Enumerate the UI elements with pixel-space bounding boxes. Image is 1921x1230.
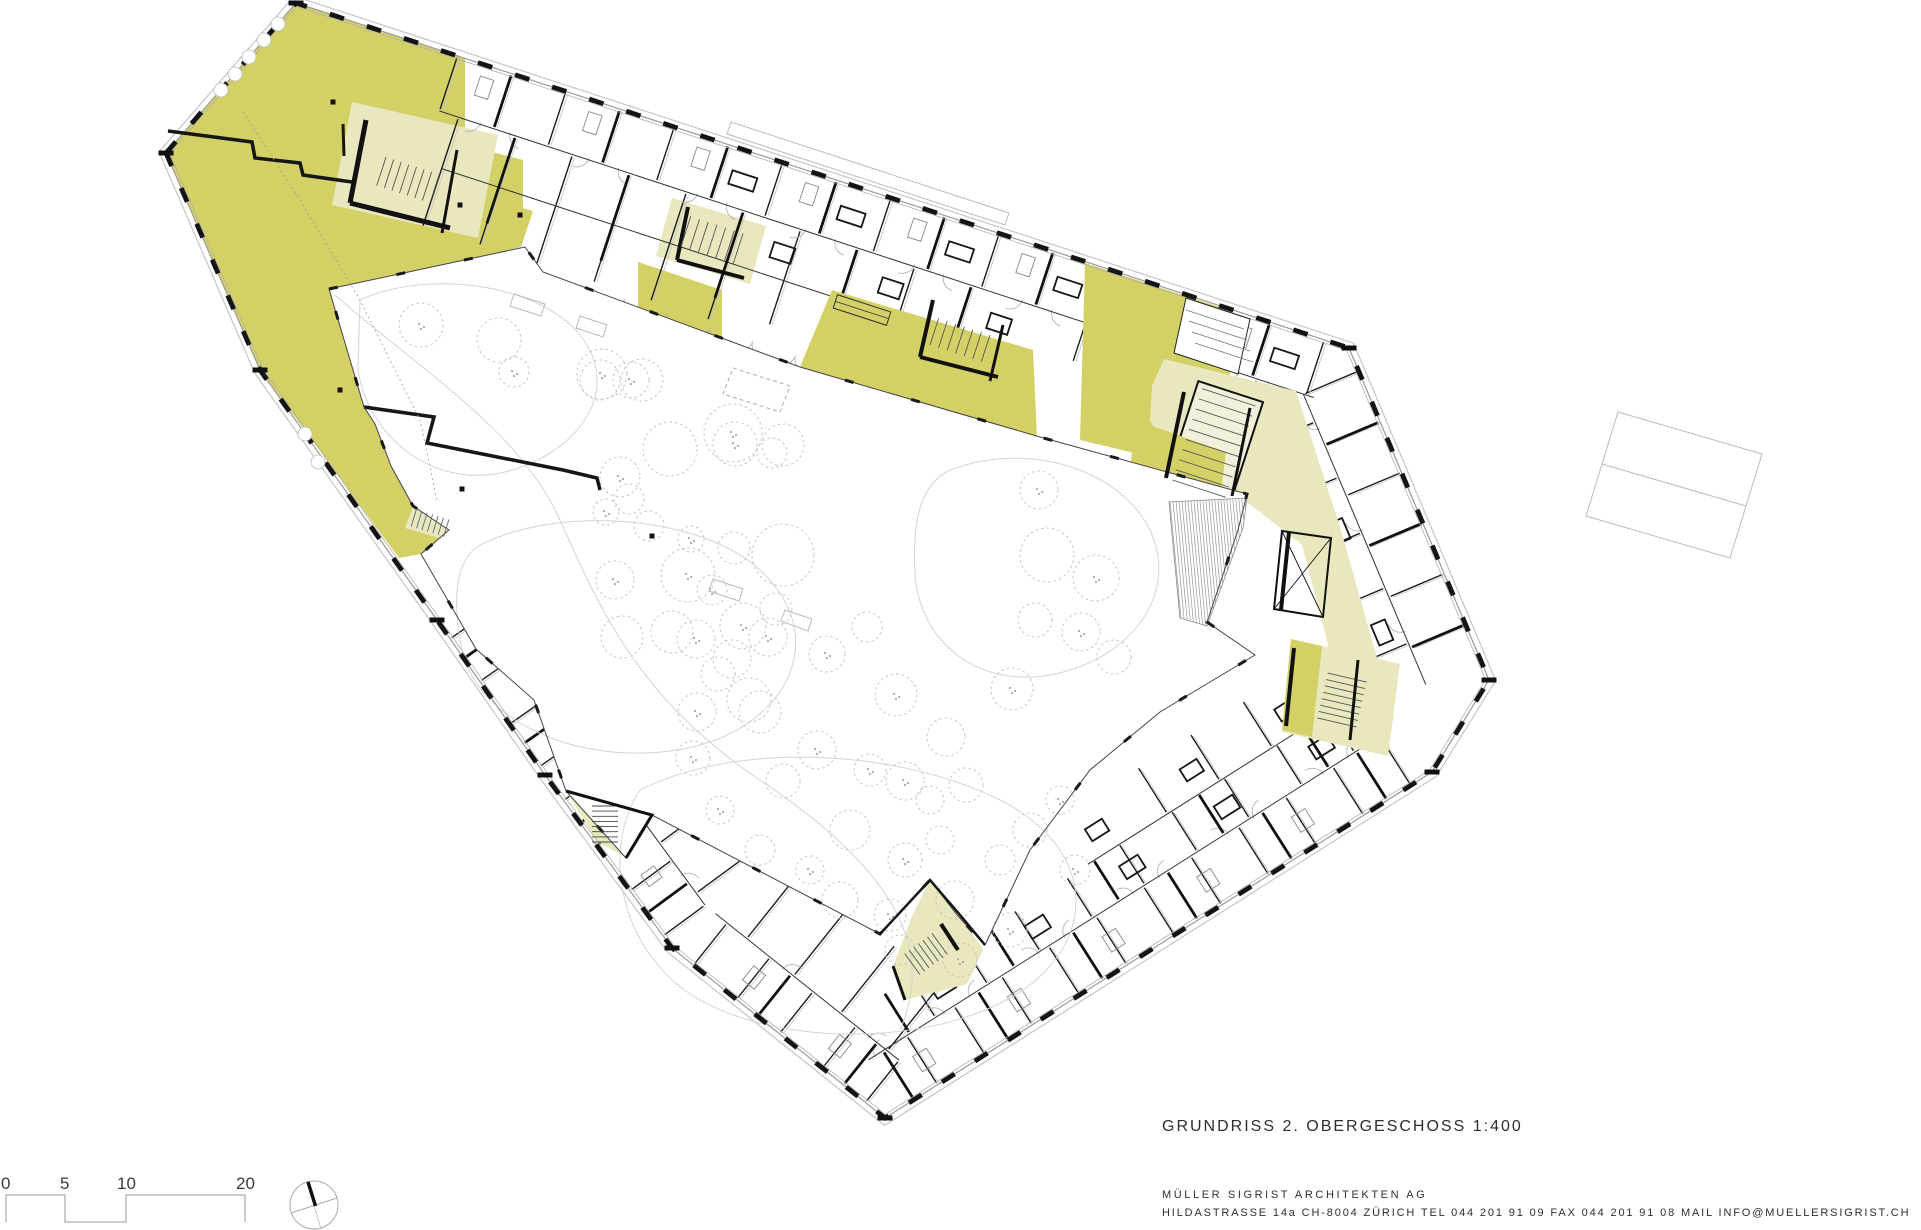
svg-text:10: 10: [117, 1174, 136, 1193]
svg-text:0: 0: [1, 1174, 10, 1193]
svg-text:20: 20: [236, 1174, 255, 1193]
svg-text:MÜLLER SIGRIST ARCHITEKTEN AG: MÜLLER SIGRIST ARCHITEKTEN AG: [1162, 1189, 1427, 1201]
svg-text:5: 5: [60, 1174, 69, 1193]
svg-text:HILDASTRASSE 14a CH-8004 ZÜRIC: HILDASTRASSE 14a CH-8004 ZÜRICH TEL 044 …: [1162, 1207, 1910, 1219]
svg-text:GRUNDRISS 2. OBERGESCHOSS 1:40: GRUNDRISS 2. OBERGESCHOSS 1:400: [1162, 1118, 1523, 1135]
